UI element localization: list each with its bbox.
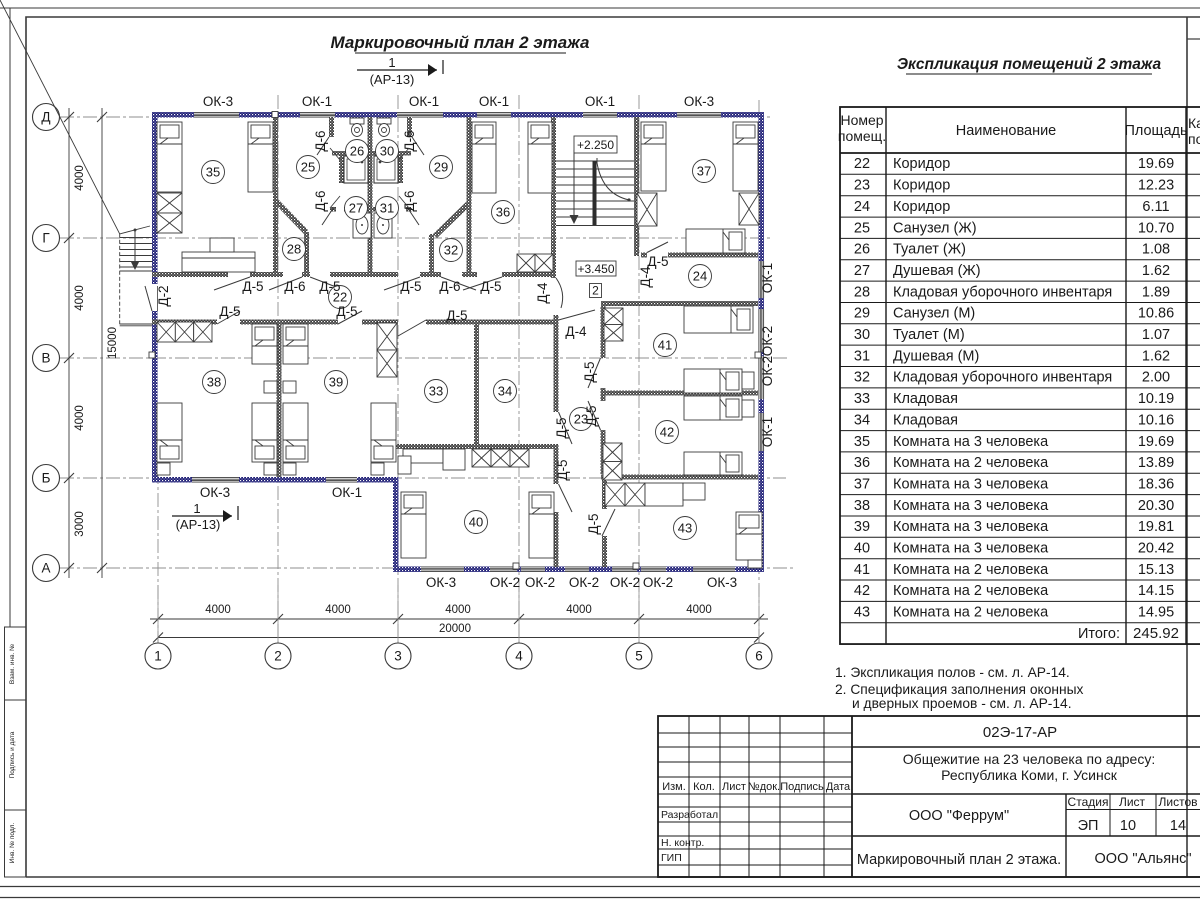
svg-text:Д-6: Д-6 xyxy=(313,130,328,151)
svg-text:4000: 4000 xyxy=(445,604,471,616)
svg-text:ОК-2: ОК-2 xyxy=(569,575,599,590)
svg-text:Коридор: Коридор xyxy=(893,199,950,215)
svg-text:28: 28 xyxy=(854,284,870,300)
svg-text:Комната на 3 человека: Комната на 3 человека xyxy=(893,498,1049,514)
svg-text:+3.450: +3.450 xyxy=(577,262,614,276)
svg-text:25: 25 xyxy=(301,160,315,175)
svg-text:Санузел (Ж): Санузел (Ж) xyxy=(893,220,977,236)
svg-text:Д: Д xyxy=(41,110,50,125)
svg-text:4000: 4000 xyxy=(74,405,86,431)
svg-text:27: 27 xyxy=(349,201,363,216)
svg-text:Маркировочный план 2 этажа.: Маркировочный план 2 этажа. xyxy=(857,852,1061,868)
svg-text:Общежитие на 23 человека по ад: Общежитие на 23 человека по адресу: xyxy=(903,751,1155,767)
svg-text:1.07: 1.07 xyxy=(1142,327,1170,343)
svg-text:43: 43 xyxy=(678,521,692,536)
svg-text:18.36: 18.36 xyxy=(1138,476,1174,492)
svg-text:ОК-3: ОК-3 xyxy=(707,575,737,590)
svg-text:4: 4 xyxy=(515,649,523,664)
svg-text:Д-6: Д-6 xyxy=(402,130,417,151)
svg-text:Коридор: Коридор xyxy=(893,156,950,172)
svg-text:ОК-1: ОК-1 xyxy=(760,417,775,447)
svg-text:29: 29 xyxy=(854,306,870,322)
svg-text:и дверных проемов - см. л. АР-: и дверных проемов - см. л. АР-14. xyxy=(852,696,1072,711)
svg-text:20000: 20000 xyxy=(439,623,471,635)
svg-text:15.13: 15.13 xyxy=(1138,562,1174,578)
svg-text:ОК-3: ОК-3 xyxy=(684,94,714,109)
svg-text:27: 27 xyxy=(854,263,870,279)
svg-text:32: 32 xyxy=(854,370,870,386)
svg-text:Д-2: Д-2 xyxy=(156,285,171,306)
svg-text:ОК-2: ОК-2 xyxy=(490,575,520,590)
svg-text:Д-5: Д-5 xyxy=(584,405,599,426)
svg-text:42: 42 xyxy=(660,425,674,440)
svg-text:Кладовая уборочного инвентаря: Кладовая уборочного инвентаря xyxy=(893,370,1112,386)
svg-text:Душевая (Ж): Душевая (Ж) xyxy=(893,263,981,279)
svg-text:Подпись: Подпись xyxy=(780,781,824,793)
svg-text:14.15: 14.15 xyxy=(1138,583,1174,599)
svg-text:36: 36 xyxy=(854,455,870,471)
svg-text:29: 29 xyxy=(434,160,448,175)
svg-text:42: 42 xyxy=(854,583,870,599)
svg-text:ООО "Феррум": ООО "Феррум" xyxy=(909,808,1009,824)
svg-text:33: 33 xyxy=(854,391,870,407)
svg-text:Д-6: Д-6 xyxy=(313,190,328,211)
svg-text:2: 2 xyxy=(274,649,282,664)
svg-text:ООО "Альянс": ООО "Альянс" xyxy=(1095,851,1192,867)
svg-text:2.00: 2.00 xyxy=(1142,370,1170,386)
svg-text:Номер: Номер xyxy=(840,112,883,128)
svg-text:+2.250: +2.250 xyxy=(577,138,614,152)
svg-text:19.69: 19.69 xyxy=(1138,434,1174,450)
svg-text:Б: Б xyxy=(42,471,51,486)
svg-text:2: 2 xyxy=(592,284,599,298)
svg-text:33: 33 xyxy=(429,384,443,399)
svg-text:20.30: 20.30 xyxy=(1138,498,1174,514)
svg-text:ОК-1: ОК-1 xyxy=(332,485,362,500)
svg-text:Комната на 2 человека: Комната на 2 человека xyxy=(893,455,1049,471)
svg-text:31: 31 xyxy=(854,348,870,364)
svg-text:Кладовая: Кладовая xyxy=(893,412,958,428)
svg-text:Д-5: Д-5 xyxy=(319,279,340,294)
svg-text:1. Экспликация полов - см. л.: 1. Экспликация полов - см. л. АР-14. xyxy=(835,665,1070,680)
svg-text:(АР-13): (АР-13) xyxy=(176,517,221,532)
svg-text:20.42: 20.42 xyxy=(1138,541,1174,557)
svg-text:43: 43 xyxy=(854,605,870,621)
svg-text:1: 1 xyxy=(193,501,200,516)
svg-text:4000: 4000 xyxy=(205,604,231,616)
svg-text:23: 23 xyxy=(854,178,870,194)
svg-text:19.81: 19.81 xyxy=(1138,519,1174,535)
svg-text:37: 37 xyxy=(854,476,870,492)
svg-text:Кладовая уборочного инвентаря: Кладовая уборочного инвентаря xyxy=(893,284,1112,300)
svg-text:6.11: 6.11 xyxy=(1142,199,1169,215)
svg-text:02Э-17-АР: 02Э-17-АР xyxy=(983,724,1057,741)
svg-text:34: 34 xyxy=(854,412,870,428)
svg-text:Д-6: Д-6 xyxy=(439,279,460,294)
svg-text:Г: Г xyxy=(42,231,50,246)
svg-text:4000: 4000 xyxy=(74,165,86,191)
svg-text:Итого:: Итого: xyxy=(1078,626,1120,642)
svg-text:ОК-1: ОК-1 xyxy=(760,263,775,293)
svg-text:24: 24 xyxy=(693,269,707,284)
svg-text:13.89: 13.89 xyxy=(1138,455,1174,471)
svg-text:37: 37 xyxy=(697,164,711,179)
svg-text:Комната на 3 человека: Комната на 3 человека xyxy=(893,434,1049,450)
svg-text:41: 41 xyxy=(854,562,870,578)
svg-text:4000: 4000 xyxy=(686,604,712,616)
svg-text:Взам. инв. №: Взам. инв. № xyxy=(9,644,16,684)
svg-text:10.16: 10.16 xyxy=(1138,412,1174,428)
svg-text:19.69: 19.69 xyxy=(1138,156,1174,172)
svg-text:32: 32 xyxy=(444,243,458,258)
svg-text:Наименование: Наименование xyxy=(956,123,1057,139)
svg-text:А: А xyxy=(41,561,50,576)
svg-text:ГИП: ГИП xyxy=(661,852,682,864)
svg-text:Комната на 3 человека: Комната на 3 человека xyxy=(893,476,1049,492)
svg-text:Д-6: Д-6 xyxy=(402,190,417,211)
svg-text:Кол.: Кол. xyxy=(693,781,715,793)
svg-text:30: 30 xyxy=(854,327,870,343)
svg-text:Н. контр.: Н. контр. xyxy=(661,837,704,849)
svg-text:Республика Коми, г. Усинск: Республика Коми, г. Усинск xyxy=(941,767,1118,783)
svg-text:28: 28 xyxy=(287,242,301,257)
svg-text:Д-5: Д-5 xyxy=(336,304,357,319)
svg-text:10.86: 10.86 xyxy=(1138,306,1174,322)
svg-text:Д-5: Д-5 xyxy=(582,361,597,382)
svg-text:5: 5 xyxy=(635,649,643,664)
svg-text:Маркировочный план 2 этажа: Маркировочный план 2 этажа xyxy=(331,33,590,52)
svg-text:35: 35 xyxy=(206,165,220,180)
svg-text:10.19: 10.19 xyxy=(1138,391,1174,407)
svg-text:1: 1 xyxy=(388,55,395,70)
svg-text:ОК-2: ОК-2 xyxy=(610,575,640,590)
svg-text:ОК-1: ОК-1 xyxy=(409,94,439,109)
svg-text:Комната на 2 человека: Комната на 2 человека xyxy=(893,562,1049,578)
svg-text:4000: 4000 xyxy=(325,604,351,616)
svg-text:Д-5: Д-5 xyxy=(554,417,569,438)
svg-text:14: 14 xyxy=(1170,818,1186,834)
svg-text:26: 26 xyxy=(350,144,364,159)
svg-text:ЭП: ЭП xyxy=(1078,818,1099,834)
svg-text:ОК-1: ОК-1 xyxy=(302,94,332,109)
svg-text:Лист: Лист xyxy=(722,781,746,793)
svg-text:245.92: 245.92 xyxy=(1133,625,1179,642)
svg-text:31: 31 xyxy=(380,201,394,216)
svg-text:Разработал: Разработал xyxy=(661,809,718,821)
svg-text:Экспликация помещений 2 этажа: Экспликация помещений 2 этажа xyxy=(897,56,1162,73)
svg-text:35: 35 xyxy=(854,434,870,450)
svg-text:Дата: Дата xyxy=(826,781,851,793)
svg-text:ОК-1: ОК-1 xyxy=(479,94,509,109)
svg-text:Кладовая: Кладовая xyxy=(893,391,958,407)
svg-text:1: 1 xyxy=(154,649,162,664)
svg-text:3000: 3000 xyxy=(74,511,86,537)
svg-text:Туалет (М): Туалет (М) xyxy=(893,327,965,343)
svg-text:Комната на 3 человека: Комната на 3 человека xyxy=(893,541,1049,557)
svg-text:34: 34 xyxy=(498,384,512,399)
svg-text:ОК-2: ОК-2 xyxy=(760,326,775,356)
svg-text:ОК-3: ОК-3 xyxy=(200,485,230,500)
svg-text:Туалет (Ж): Туалет (Ж) xyxy=(893,242,966,258)
svg-text:Д-5: Д-5 xyxy=(242,279,263,294)
svg-text:Площадь: Площадь xyxy=(1124,123,1187,139)
svg-text:26: 26 xyxy=(854,242,870,258)
svg-text:Комната на 2 человека: Комната на 2 человека xyxy=(893,605,1049,621)
svg-text:Инв. № подл.: Инв. № подл. xyxy=(9,823,16,864)
svg-text:В: В xyxy=(41,351,50,366)
svg-text:25: 25 xyxy=(854,220,870,236)
svg-text:Комната на 2 человека: Комната на 2 человека xyxy=(893,583,1049,599)
svg-text:4000: 4000 xyxy=(74,285,86,311)
svg-text:14.95: 14.95 xyxy=(1138,605,1174,621)
svg-text:Стадия: Стадия xyxy=(1068,795,1109,809)
svg-text:Ка: Ка xyxy=(1188,115,1200,131)
svg-text:39: 39 xyxy=(329,375,343,390)
svg-text:помещ.: помещ. xyxy=(838,128,886,144)
svg-text:10: 10 xyxy=(1120,818,1136,834)
svg-text:1.89: 1.89 xyxy=(1142,284,1170,300)
svg-text:40: 40 xyxy=(854,541,870,557)
svg-text:39: 39 xyxy=(854,519,870,535)
svg-text:Д-5: Д-5 xyxy=(400,279,421,294)
svg-text:Д-5: Д-5 xyxy=(555,459,570,480)
svg-text:Комната на 3 человека: Комната на 3 человека xyxy=(893,519,1049,535)
svg-text:ОК-2: ОК-2 xyxy=(525,575,555,590)
svg-text:4000: 4000 xyxy=(566,604,592,616)
svg-text:10.70: 10.70 xyxy=(1138,220,1174,236)
svg-text:3: 3 xyxy=(394,649,402,664)
svg-text:24: 24 xyxy=(854,199,870,215)
svg-text:Листов: Листов xyxy=(1159,795,1198,809)
svg-text:2. Спецификация заполнения око: 2. Спецификация заполнения оконных xyxy=(835,682,1084,697)
svg-text:Д-6: Д-6 xyxy=(284,279,305,294)
svg-text:Д-4: Д-4 xyxy=(565,324,587,339)
svg-text:Д-4: Д-4 xyxy=(535,282,550,304)
svg-text:1.62: 1.62 xyxy=(1142,263,1170,279)
svg-text:15000: 15000 xyxy=(107,327,119,359)
svg-text:ОК-2: ОК-2 xyxy=(643,575,673,590)
svg-text:6: 6 xyxy=(755,649,763,664)
svg-text:Лист: Лист xyxy=(1119,795,1146,809)
svg-text:ОК-2: ОК-2 xyxy=(760,356,775,386)
svg-text:по: по xyxy=(1188,131,1200,147)
svg-text:Д-5: Д-5 xyxy=(446,308,467,323)
svg-text:ОК-3: ОК-3 xyxy=(203,94,233,109)
svg-text:41: 41 xyxy=(658,338,672,353)
svg-text:Изм.: Изм. xyxy=(662,781,686,793)
svg-text:38: 38 xyxy=(207,375,221,390)
svg-text:(АР-13): (АР-13) xyxy=(370,72,415,87)
svg-text:1.62: 1.62 xyxy=(1142,348,1170,364)
svg-text:12.23: 12.23 xyxy=(1138,178,1174,194)
svg-text:Д-5: Д-5 xyxy=(219,304,240,319)
svg-text:Д-4: Д-4 xyxy=(638,266,653,288)
svg-text:40: 40 xyxy=(469,515,483,530)
svg-text:Санузел (М): Санузел (М) xyxy=(893,306,975,322)
svg-text:22: 22 xyxy=(854,156,870,172)
svg-text:Д-5: Д-5 xyxy=(586,513,601,534)
svg-text:ОК-3: ОК-3 xyxy=(426,575,456,590)
svg-text:Душевая (М): Душевая (М) xyxy=(893,348,979,364)
svg-text:38: 38 xyxy=(854,498,870,514)
svg-text:Подпись и дата: Подпись и дата xyxy=(9,731,16,778)
svg-text:ОК-1: ОК-1 xyxy=(585,94,615,109)
svg-text:Д-5: Д-5 xyxy=(480,279,501,294)
svg-text:1.08: 1.08 xyxy=(1142,242,1170,258)
svg-text:Коридор: Коридор xyxy=(893,178,950,194)
svg-text:36: 36 xyxy=(496,205,510,220)
svg-text:30: 30 xyxy=(380,144,394,159)
svg-text:№док.: №док. xyxy=(748,781,780,793)
